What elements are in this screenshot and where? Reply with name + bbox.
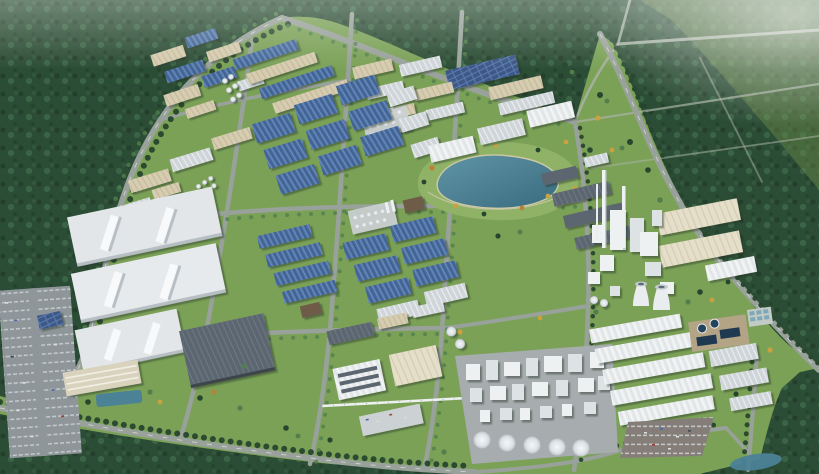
scene-svg <box>0 0 819 474</box>
industrial-park-aerial-rendering <box>0 0 819 474</box>
lake-water <box>437 155 558 208</box>
silo-plant <box>455 344 618 464</box>
southeast-parking-lot <box>620 417 714 458</box>
